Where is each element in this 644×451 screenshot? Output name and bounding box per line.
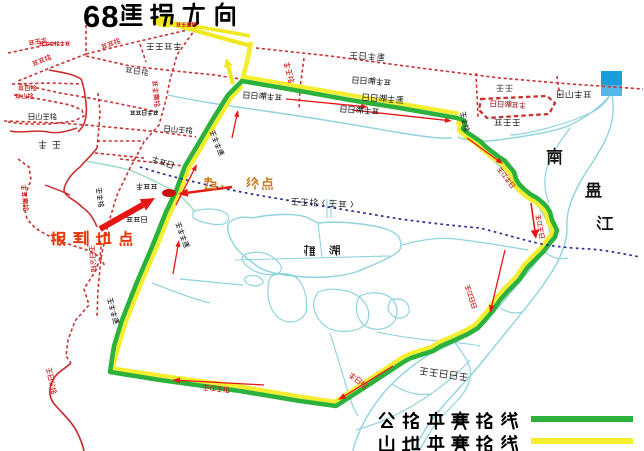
svg-text:68: 68	[83, 0, 119, 34]
